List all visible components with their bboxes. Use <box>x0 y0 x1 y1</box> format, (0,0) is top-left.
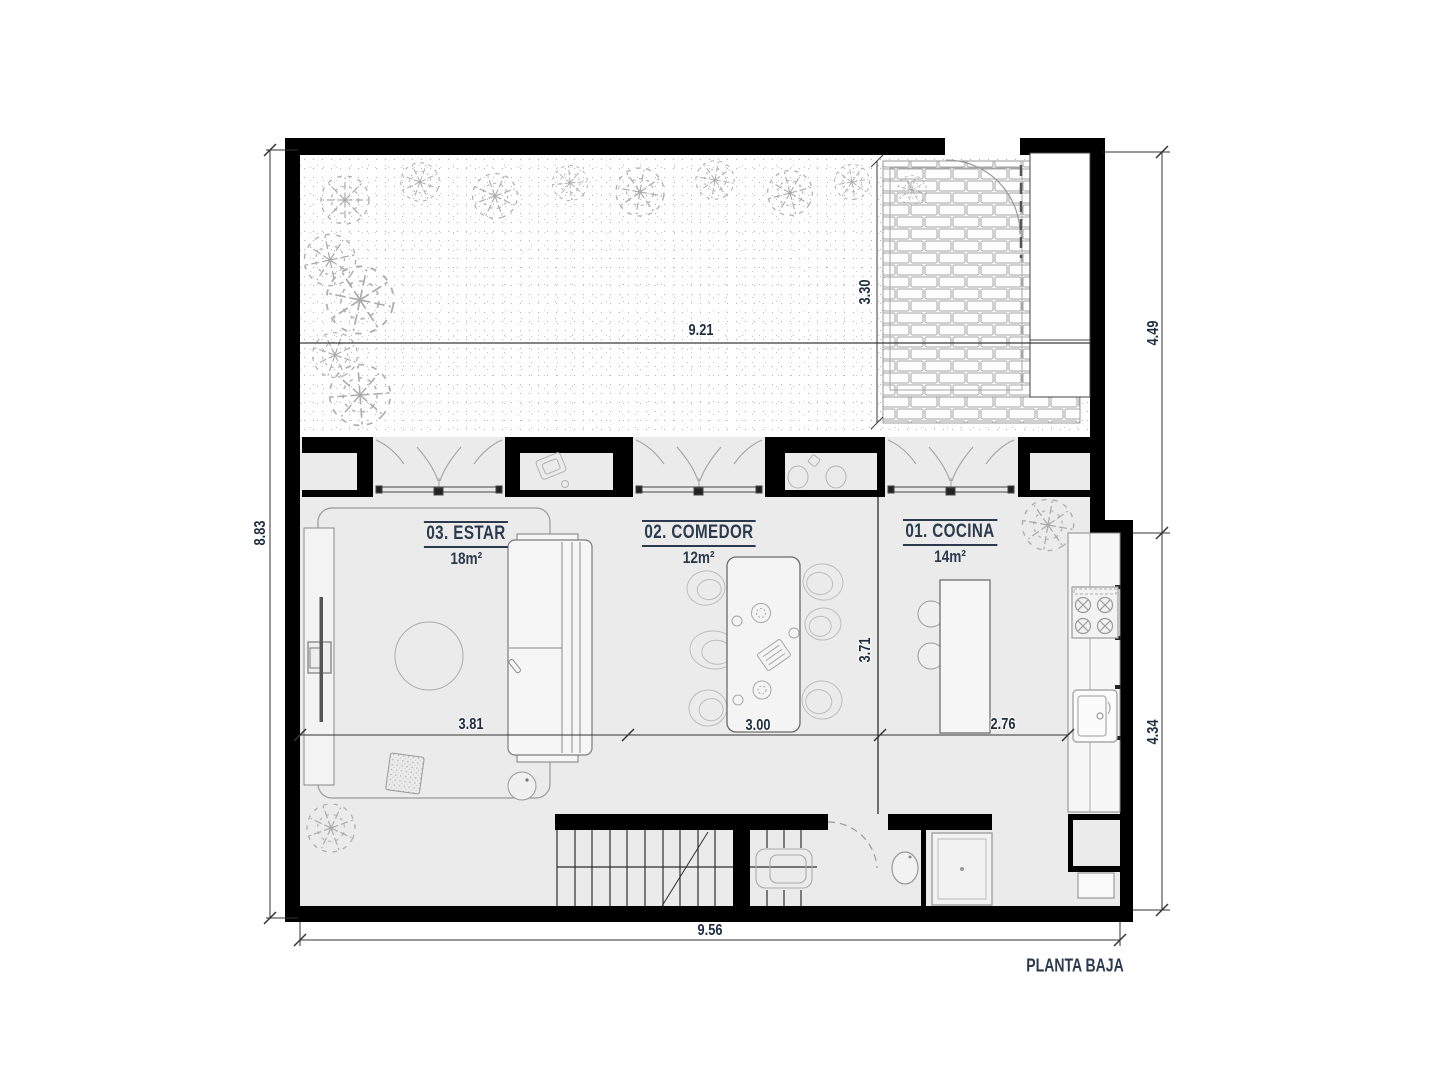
dining-table <box>727 557 800 732</box>
sink-icon <box>1073 690 1117 742</box>
kitchen-counter <box>1068 533 1121 812</box>
understairs-chair <box>756 849 812 888</box>
dim-cocina-width: 2.76 <box>987 716 1018 734</box>
indoor-plant <box>299 796 363 860</box>
shower-icon <box>932 833 992 905</box>
dim-right-lower: 4.34 <box>1145 716 1163 747</box>
floor-cushion <box>386 753 425 794</box>
curtain-icon <box>888 440 1014 489</box>
bathroom-door-swing-icon <box>828 822 877 868</box>
sliding-door-track <box>636 486 762 495</box>
kitchen-island <box>940 580 990 733</box>
window-bays <box>376 440 1014 495</box>
dim-right-upper: 4.49 <box>1145 317 1163 348</box>
room-label-cocina: 01. COCINA 14m² <box>891 519 1009 567</box>
toilet-icon <box>892 852 918 884</box>
room-title: 01. COCINA <box>903 519 997 546</box>
washer-icon <box>1078 873 1114 898</box>
toilet-flush <box>909 856 912 859</box>
stairs <box>557 830 817 906</box>
plan-title: PLANTA BAJA <box>1013 956 1138 977</box>
dim-garden-width: 9.21 <box>685 322 716 340</box>
patio-side-unit <box>1030 153 1090 397</box>
stove-icon <box>1072 587 1118 638</box>
room-area: 18m² <box>450 549 482 569</box>
dim-bottom-width: 9.56 <box>694 922 725 940</box>
floor-plan: 03. ESTAR 18m² 02. COMEDOR 12m² 01. COCI… <box>0 0 1440 1080</box>
dim-left-height: 8.83 <box>252 517 270 548</box>
garden-plants <box>295 153 930 438</box>
tv-icon <box>320 597 324 722</box>
room-title: 02. COMEDOR <box>642 520 756 547</box>
room-title: 03. ESTAR <box>424 521 508 548</box>
sofa <box>508 534 592 762</box>
round-table <box>395 622 463 690</box>
dim-comedor-width: 3.00 <box>742 717 773 735</box>
pouf <box>508 772 536 800</box>
dim-interior-depth: 3.71 <box>857 634 875 665</box>
sliding-door-track <box>888 486 1014 495</box>
curtain-icon <box>376 440 502 489</box>
room-label-estar: 03. ESTAR 18m² <box>413 521 518 569</box>
tv-console <box>304 528 334 785</box>
room-label-comedor: 02. COMEDOR 12m² <box>628 520 770 568</box>
niche-decor <box>535 452 846 488</box>
room-area: 14m² <box>934 547 966 567</box>
dim-estar-width: 3.81 <box>455 716 486 734</box>
room-area: 12m² <box>683 548 715 568</box>
curtain-icon <box>636 440 762 489</box>
sliding-door-track <box>376 486 502 495</box>
dim-patio-depth: 3.30 <box>857 276 875 307</box>
